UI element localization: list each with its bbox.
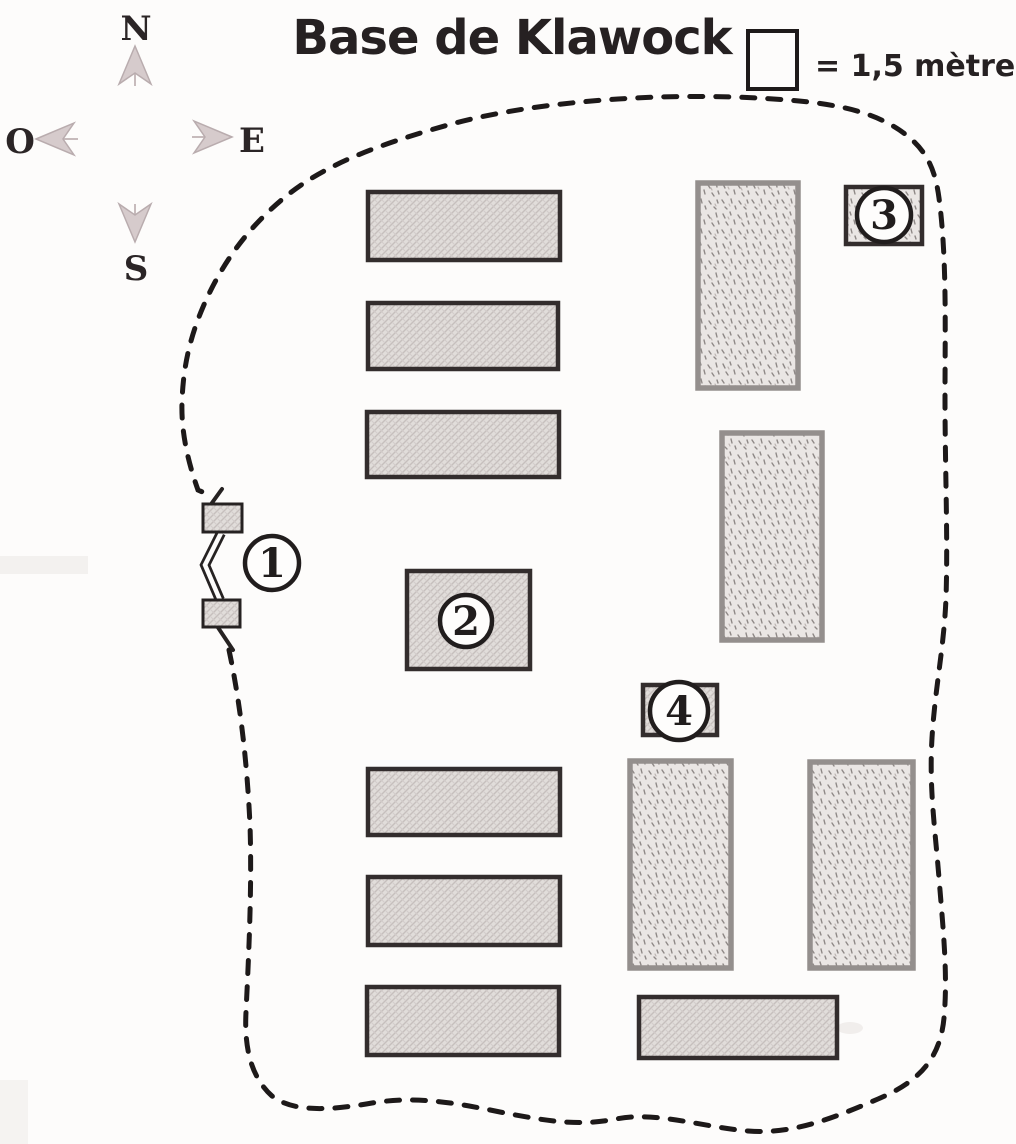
marker-3: 3 [857, 188, 911, 242]
building-depot-se-2 [810, 762, 913, 968]
building-depot-e [722, 433, 822, 640]
gate-post-1 [203, 504, 242, 532]
building-barrack-nw-1 [368, 192, 560, 260]
building-barrack-nw-3 [367, 412, 559, 477]
scan-smudge [837, 1022, 863, 1034]
marker-number: 2 [452, 598, 480, 645]
compass-label-north: N [120, 9, 151, 49]
scale-label: = 1,5 mètre [815, 49, 1015, 84]
compass-rose: N E S O [5, 9, 265, 289]
compass-label-west: O [5, 122, 35, 162]
building-barrack-sw-2 [368, 877, 560, 945]
building-barrack-sw-3 [367, 987, 559, 1055]
base-map: 1234 N E S O Base de Klawock = 1,5 mètre [0, 0, 1016, 1144]
building-barrack-s [639, 997, 837, 1058]
marker-1: 1 [245, 536, 299, 590]
map-page: 1234 N E S O Base de Klawock = 1,5 mètre [0, 0, 1016, 1144]
marker-number: 3 [870, 192, 898, 239]
building-depot-se-1 [630, 761, 731, 968]
building-barrack-nw-2 [368, 303, 558, 369]
gate-stub-bottom [217, 626, 233, 650]
buildings-layer [203, 183, 922, 1058]
compass-label-south: S [124, 249, 149, 289]
scale-legend: = 1,5 mètre [748, 31, 1015, 89]
scale-square-icon [748, 31, 797, 89]
base-boundary [182, 96, 947, 1131]
page-title: Base de Klawock [292, 10, 733, 66]
building-barrack-sw-1 [368, 769, 560, 835]
marker-number: 4 [665, 688, 693, 735]
building-depot-ne [698, 183, 798, 388]
scan-smudge [0, 556, 88, 574]
marker-4: 4 [650, 682, 708, 740]
compass-label-east: E [239, 121, 265, 161]
gate-post-2 [203, 600, 240, 627]
marker-2: 2 [440, 595, 492, 647]
scan-smudge [0, 1080, 28, 1144]
marker-number: 1 [258, 540, 286, 587]
